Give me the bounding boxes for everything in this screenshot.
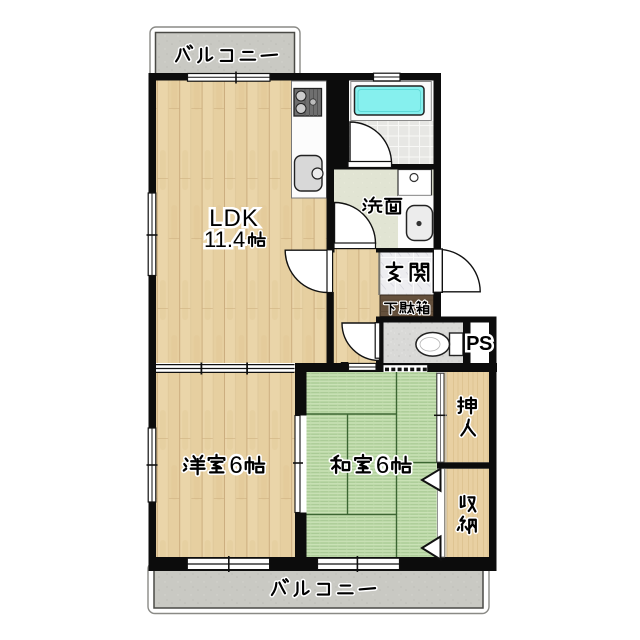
svg-text:6: 6: [229, 452, 242, 479]
svg-text:11.4: 11.4: [204, 227, 245, 252]
svg-text:6: 6: [376, 452, 389, 479]
svg-text:PS: PS: [466, 333, 492, 355]
